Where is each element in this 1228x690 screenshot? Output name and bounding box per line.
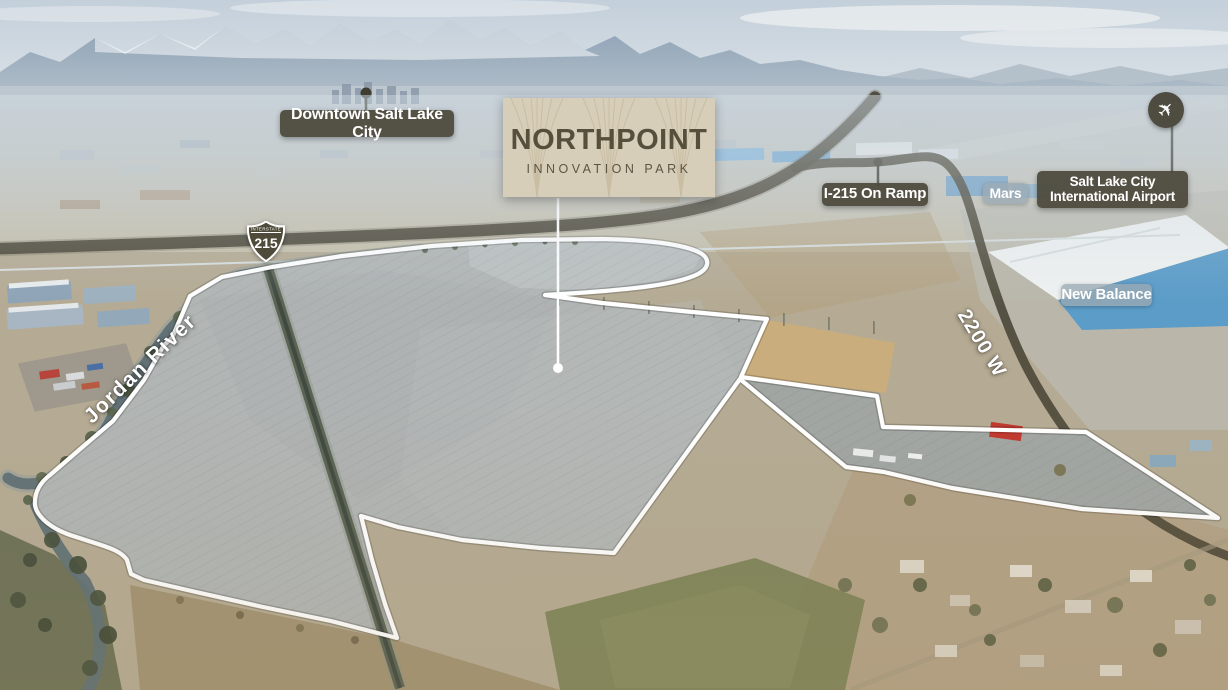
airplane-icon: ✈ [1153, 97, 1179, 123]
shield-number-text: 215 [254, 235, 278, 251]
site-marker-dot [553, 363, 563, 373]
label-downtown-text: Downtown Salt Lake City [280, 106, 454, 141]
label-i215-on-ramp: I-215 On Ramp [822, 183, 928, 206]
label-onramp-text: I-215 On Ramp [824, 186, 926, 203]
label-mars-text: Mars [990, 186, 1022, 201]
label-airport-line2: International Airport [1050, 190, 1175, 205]
interstate-215-shield: INTERSTATE 215 [247, 221, 285, 262]
sign-title: NORTHPOINT [511, 124, 708, 157]
label-airport-line1: Salt Lake City [1070, 175, 1156, 190]
label-slc-international-airport: Salt Lake City International Airport [1037, 171, 1188, 208]
label-downtown-salt-lake-city: Downtown Salt Lake City [280, 110, 454, 137]
label-new-balance-text: New Balance [1061, 287, 1151, 304]
label-mars: Mars [983, 183, 1028, 204]
aerial-site-map: NORTHPOINT INNOVATION PARK Downtown Salt… [0, 0, 1228, 690]
airport-badge: ✈ [1148, 92, 1184, 128]
shield-interstate-text: INTERSTATE [251, 227, 281, 232]
northpoint-sign: NORTHPOINT INNOVATION PARK [503, 98, 715, 197]
sign-subtitle: INNOVATION PARK [526, 162, 691, 176]
label-new-balance: New Balance [1061, 284, 1152, 306]
